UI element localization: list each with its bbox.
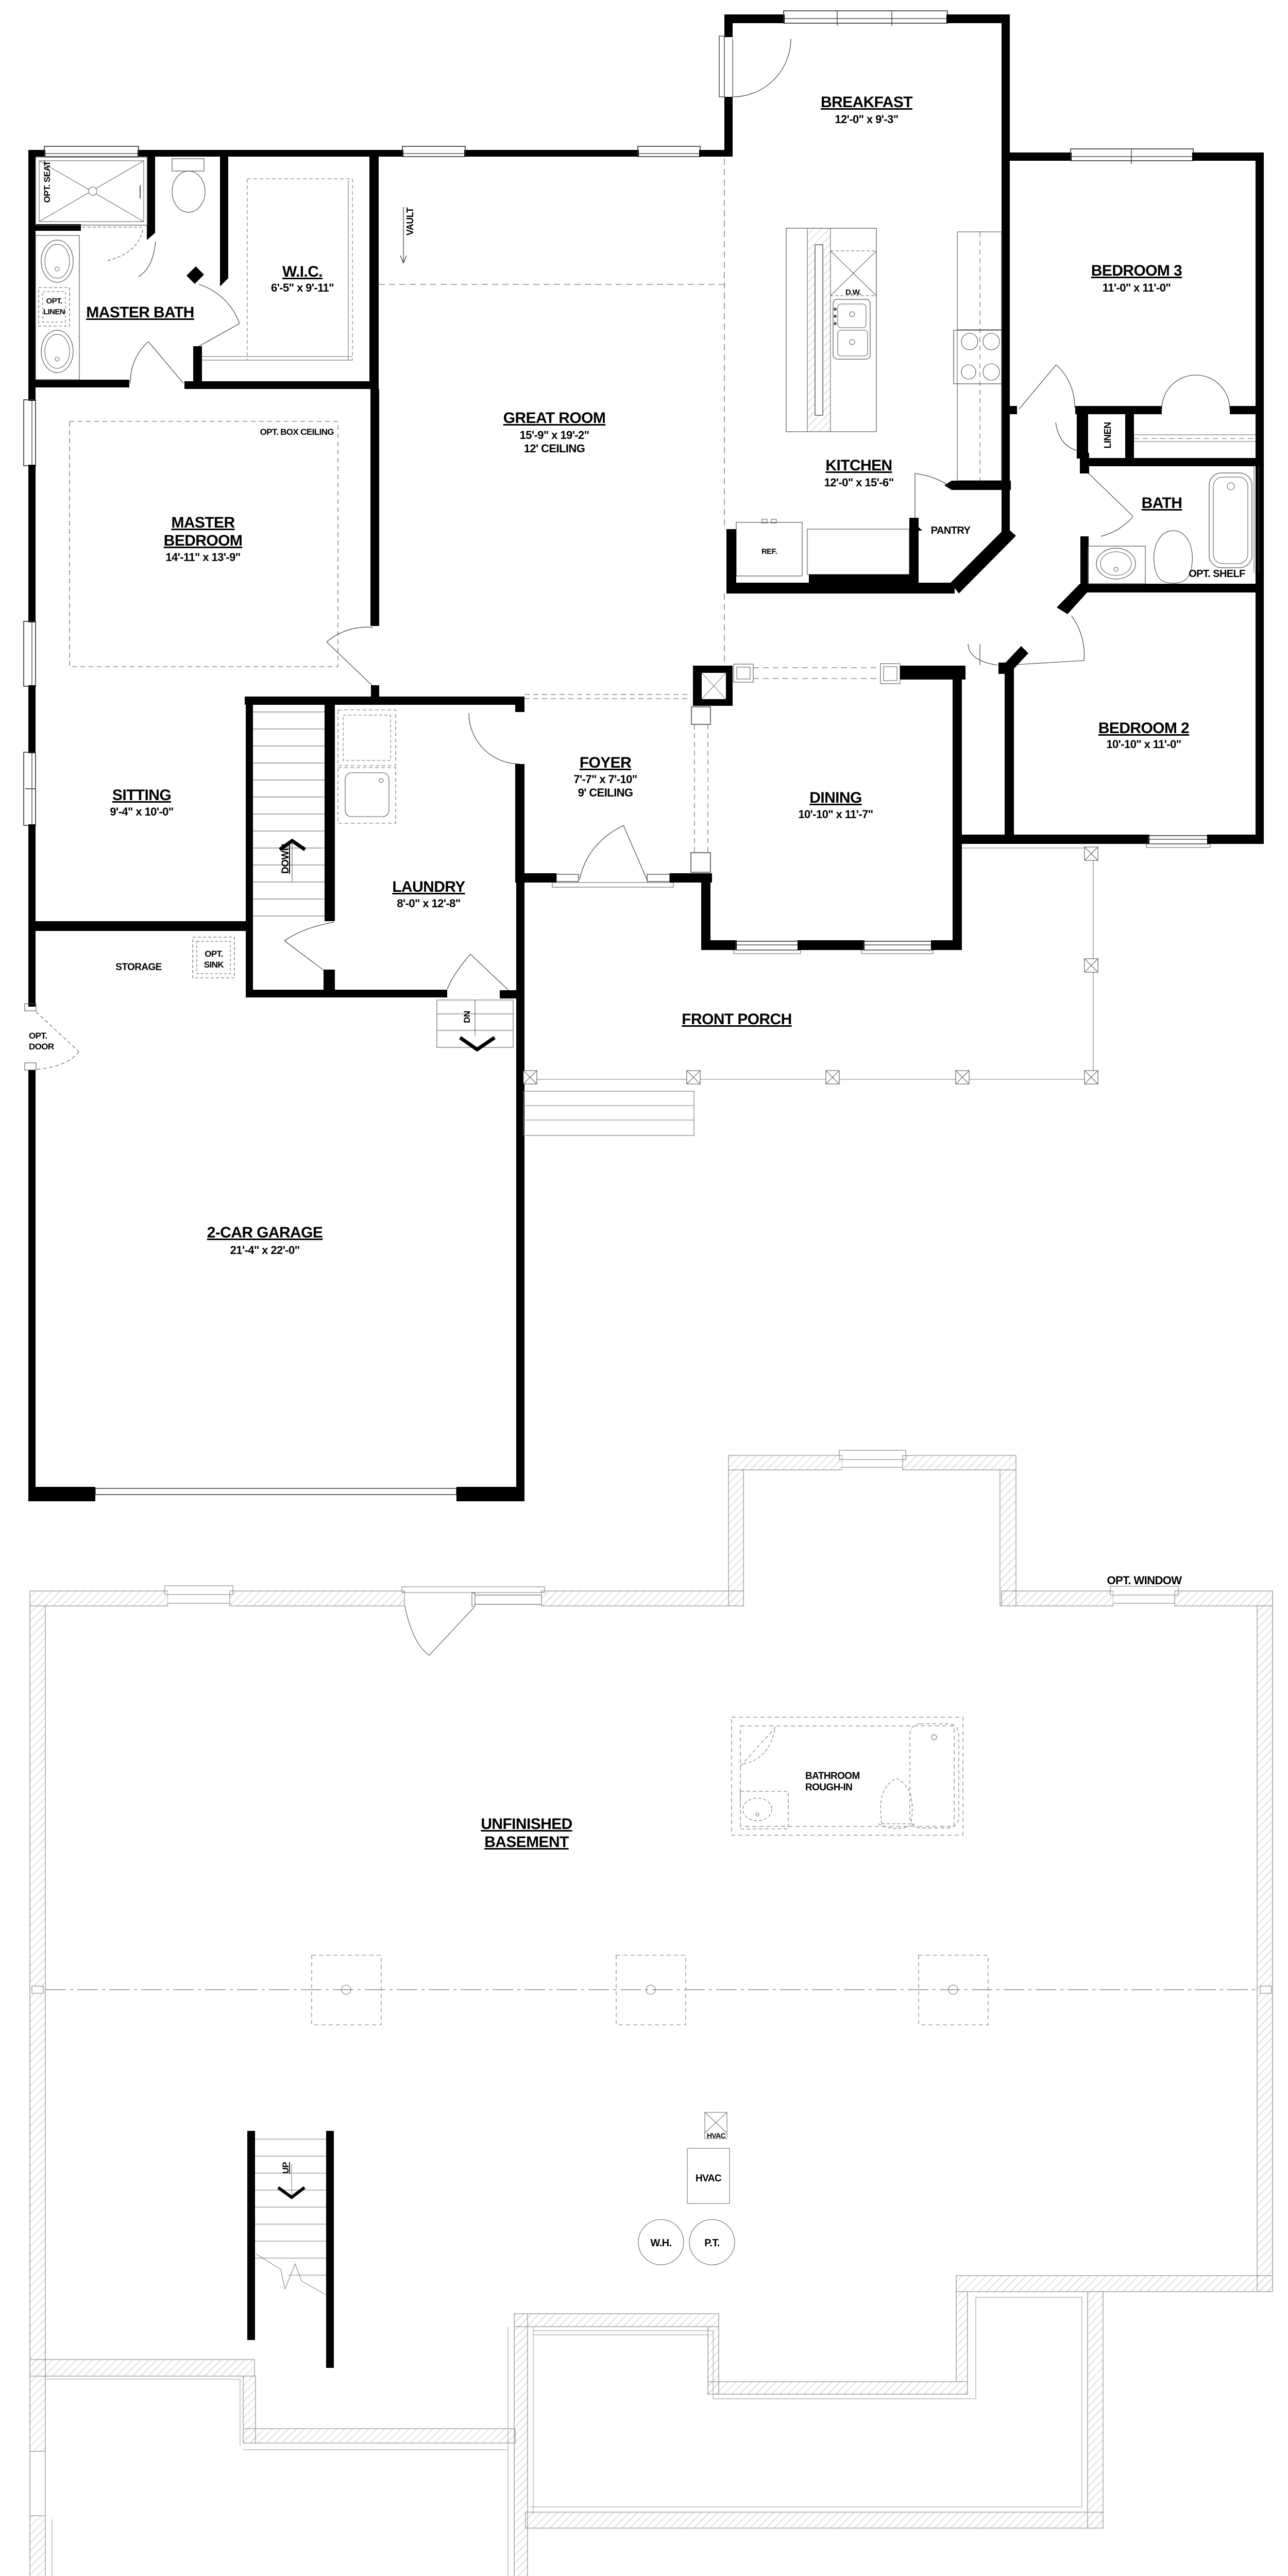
svg-text:STORAGE: STORAGE: [115, 962, 161, 973]
svg-text:OPT. BOX CEILING: OPT. BOX CEILING: [260, 427, 334, 437]
svg-text:KITCHEN: KITCHEN: [825, 457, 892, 474]
svg-text:15'-9" x 19'-2": 15'-9" x 19'-2": [520, 429, 589, 442]
svg-text:LINEN: LINEN: [1103, 422, 1113, 448]
svg-text:7'-7" x 7'-10": 7'-7" x 7'-10": [573, 773, 637, 786]
svg-text:BEDROOM 3: BEDROOM 3: [1091, 262, 1182, 279]
svg-text:OPT.: OPT.: [205, 949, 223, 959]
svg-text:12' CEILING: 12' CEILING: [524, 442, 585, 455]
svg-text:12'-0" x 9'-3": 12'-0" x 9'-3": [835, 113, 898, 126]
svg-text:OPT. WINDOW: OPT. WINDOW: [1107, 1574, 1182, 1587]
svg-text:GREAT ROOM: GREAT ROOM: [503, 410, 605, 427]
svg-text:BATH: BATH: [1142, 495, 1182, 512]
svg-text:BREAKFAST: BREAKFAST: [821, 94, 912, 111]
svg-text:11'-0" x 11'-0": 11'-0" x 11'-0": [1103, 281, 1171, 294]
svg-text:BATHROOM: BATHROOM: [805, 1771, 860, 1782]
svg-text:MASTER BATH: MASTER BATH: [86, 304, 194, 321]
svg-text:2-CAR GARAGE: 2-CAR GARAGE: [207, 1224, 323, 1241]
svg-text:SINK: SINK: [204, 960, 225, 970]
svg-text:12'-0" x 15'-6": 12'-0" x 15'-6": [824, 476, 894, 489]
svg-text:PANTRY: PANTRY: [931, 525, 971, 536]
svg-text:W.H.: W.H.: [651, 2238, 672, 2249]
svg-text:SITTING: SITTING: [112, 787, 171, 804]
svg-text:DN: DN: [462, 1011, 472, 1023]
svg-text:10'-10" x 11'-0": 10'-10" x 11'-0": [1106, 738, 1181, 751]
svg-text:P.T.: P.T.: [704, 2238, 720, 2249]
svg-text:21'-4" x 22'-0": 21'-4" x 22'-0": [230, 1244, 300, 1257]
svg-text:W.I.C.: W.I.C.: [282, 263, 323, 280]
svg-text:ROUGH-IN: ROUGH-IN: [805, 1782, 852, 1793]
svg-text:10'-10" x 11'-7": 10'-10" x 11'-7": [798, 808, 873, 821]
svg-text:BEDROOM: BEDROOM: [164, 532, 242, 549]
svg-text:9' CEILING: 9' CEILING: [578, 786, 633, 799]
svg-text:9'-4" x 10'-0": 9'-4" x 10'-0": [110, 805, 173, 818]
svg-text:8'-0" x 12'-8": 8'-0" x 12'-8": [397, 897, 460, 910]
svg-text:OPT.: OPT.: [29, 1031, 47, 1041]
svg-text:DOOR: DOOR: [29, 1042, 54, 1052]
svg-text:HVAC: HVAC: [707, 2131, 726, 2140]
svg-text:14'-11" x 13'-9": 14'-11" x 13'-9": [165, 551, 240, 564]
svg-text:VAULT: VAULT: [405, 207, 415, 235]
svg-text:D.W.: D.W.: [845, 288, 861, 297]
svg-text:BEDROOM 2: BEDROOM 2: [1098, 720, 1189, 737]
svg-text:UNFINISHED: UNFINISHED: [481, 1816, 572, 1833]
svg-text:OPT.: OPT.: [46, 297, 62, 306]
svg-text:BASEMENT: BASEMENT: [484, 1834, 569, 1851]
svg-text:DINING: DINING: [809, 789, 861, 806]
svg-text:HVAC: HVAC: [696, 2173, 722, 2184]
svg-text:UP: UP: [281, 2162, 291, 2174]
svg-text:6'-5" x 9'-11": 6'-5" x 9'-11": [271, 281, 334, 294]
svg-text:DOWN: DOWN: [280, 844, 291, 874]
svg-text:OPT. SEAT: OPT. SEAT: [42, 160, 52, 202]
svg-text:FOYER: FOYER: [580, 754, 632, 771]
svg-text:REF.: REF.: [761, 547, 777, 556]
svg-text:FRONT PORCH: FRONT PORCH: [682, 1011, 791, 1028]
svg-text:LINEN: LINEN: [43, 308, 65, 316]
svg-text:OPT. SHELF: OPT. SHELF: [1189, 568, 1245, 580]
svg-text:LAUNDRY: LAUNDRY: [392, 878, 465, 895]
svg-text:MASTER: MASTER: [171, 514, 235, 531]
